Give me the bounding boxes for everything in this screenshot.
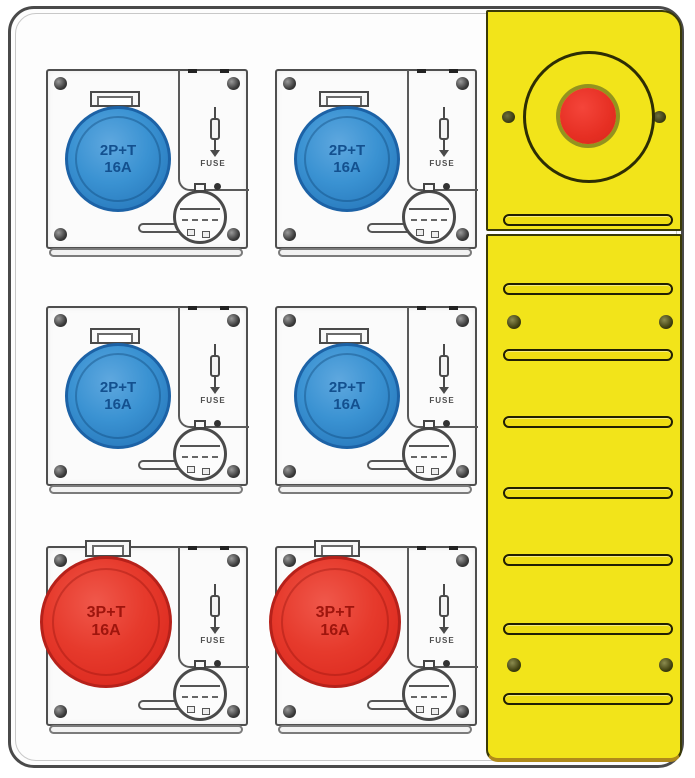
fuse-carrier-icon <box>402 667 456 721</box>
lid-tab-icon <box>90 328 140 344</box>
socket-module-6: FUSE 3P+T 16A <box>275 546 477 726</box>
socket-module-5: FUSE 3P+T 16A <box>46 546 248 726</box>
junction-screw-icon <box>214 420 221 427</box>
screw-icon <box>456 228 469 241</box>
screw-icon <box>227 465 240 478</box>
vent-slot <box>503 487 673 499</box>
cee-socket-blue: 2P+T 16A <box>294 106 400 212</box>
screw-icon <box>283 554 296 567</box>
lid-tab-icon <box>85 540 131 557</box>
fuse-icon <box>207 344 223 396</box>
socket-rating-label: 16A <box>333 396 361 413</box>
screw-icon <box>54 314 67 327</box>
fuse-carrier-icon <box>173 190 227 244</box>
emergency-stop-plate <box>486 10 682 231</box>
fuse-icon <box>207 584 223 636</box>
distribution-board-drawing: FUSE 2P+T 16A FUSE <box>0 0 695 778</box>
fuse-label: FUSE <box>180 159 246 168</box>
screw-icon <box>54 705 67 718</box>
lid-tab-icon <box>319 91 369 107</box>
screw-icon <box>54 77 67 90</box>
vent-slot <box>503 623 673 635</box>
screw-icon <box>456 314 469 327</box>
vent-slot <box>503 416 673 428</box>
screw-icon <box>507 658 521 672</box>
carrier-notch <box>194 660 206 669</box>
module-bottom-flange <box>49 248 243 257</box>
module-bottom-flange <box>49 725 243 734</box>
vent-slot <box>503 283 673 295</box>
screw-icon <box>227 228 240 241</box>
screw-icon <box>54 465 67 478</box>
screw-icon <box>227 314 240 327</box>
lid-tab-icon <box>314 540 360 557</box>
vent-plate <box>486 234 682 762</box>
screw-icon <box>283 314 296 327</box>
socket-rating-label: 16A <box>91 622 120 640</box>
fuse-label: FUSE <box>409 159 475 168</box>
vent-slot <box>503 214 673 226</box>
emergency-stop-icon <box>560 88 616 144</box>
fuse-label: FUSE <box>180 396 246 405</box>
screw-icon <box>54 554 67 567</box>
vent-slot <box>503 554 673 566</box>
mounting-lug-icon <box>502 111 515 123</box>
screw-icon <box>456 77 469 90</box>
screw-icon <box>507 315 521 329</box>
cee-socket-blue: 2P+T 16A <box>294 343 400 449</box>
cee-socket-blue: 2P+T 16A <box>65 343 171 449</box>
screw-icon <box>227 705 240 718</box>
socket-type-label: 2P+T <box>100 142 136 159</box>
screw-icon <box>227 554 240 567</box>
screw-icon <box>659 658 673 672</box>
screw-icon <box>659 315 673 329</box>
fuse-carrier-icon <box>173 427 227 481</box>
screw-icon <box>283 228 296 241</box>
carrier-notch <box>194 420 206 429</box>
junction-screw-icon <box>214 660 221 667</box>
junction-screw-icon <box>214 183 221 190</box>
screw-icon <box>283 465 296 478</box>
carrier-notch <box>423 660 435 669</box>
screw-icon <box>456 705 469 718</box>
junction-screw-icon <box>443 183 450 190</box>
screw-icon <box>456 465 469 478</box>
vent-slot <box>503 693 673 705</box>
fuse-icon <box>436 584 452 636</box>
fuse-carrier-icon <box>173 667 227 721</box>
lid-tab-icon <box>319 328 369 344</box>
screw-icon <box>54 228 67 241</box>
screw-icon <box>227 77 240 90</box>
module-bottom-flange <box>278 248 472 257</box>
fuse-icon <box>436 107 452 159</box>
junction-screw-icon <box>443 420 450 427</box>
socket-rating-label: 16A <box>320 622 349 640</box>
fuse-label: FUSE <box>409 396 475 405</box>
socket-type-label: 2P+T <box>100 379 136 396</box>
fuse-icon <box>207 107 223 159</box>
socket-type-label: 2P+T <box>329 379 365 396</box>
fuse-carrier-icon <box>402 190 456 244</box>
junction-screw-icon <box>443 660 450 667</box>
module-bottom-flange <box>49 485 243 494</box>
carrier-notch <box>423 183 435 192</box>
socket-module-3: FUSE 2P+T 16A <box>46 306 248 486</box>
socket-type-label: 2P+T <box>329 142 365 159</box>
fuse-label: FUSE <box>180 636 246 645</box>
socket-rating-label: 16A <box>104 159 132 176</box>
cee-socket-red: 3P+T 16A <box>269 556 401 688</box>
screw-icon <box>283 77 296 90</box>
carrier-notch <box>423 420 435 429</box>
socket-rating-label: 16A <box>333 159 361 176</box>
fuse-label: FUSE <box>409 636 475 645</box>
fuse-icon <box>436 344 452 396</box>
module-bottom-flange <box>278 725 472 734</box>
fuse-carrier-icon <box>402 427 456 481</box>
screw-icon <box>456 554 469 567</box>
socket-rating-label: 16A <box>104 396 132 413</box>
socket-module-1: FUSE 2P+T 16A <box>46 69 248 249</box>
cee-socket-red: 3P+T 16A <box>40 556 172 688</box>
lid-tab-icon <box>90 91 140 107</box>
module-bottom-flange <box>278 485 472 494</box>
socket-type-label: 3P+T <box>316 604 355 622</box>
socket-module-2: FUSE 2P+T 16A <box>275 69 477 249</box>
screw-icon <box>283 705 296 718</box>
vent-slot <box>503 349 673 361</box>
cee-socket-blue: 2P+T 16A <box>65 106 171 212</box>
socket-type-label: 3P+T <box>87 604 126 622</box>
carrier-notch <box>194 183 206 192</box>
socket-module-4: FUSE 2P+T 16A <box>275 306 477 486</box>
